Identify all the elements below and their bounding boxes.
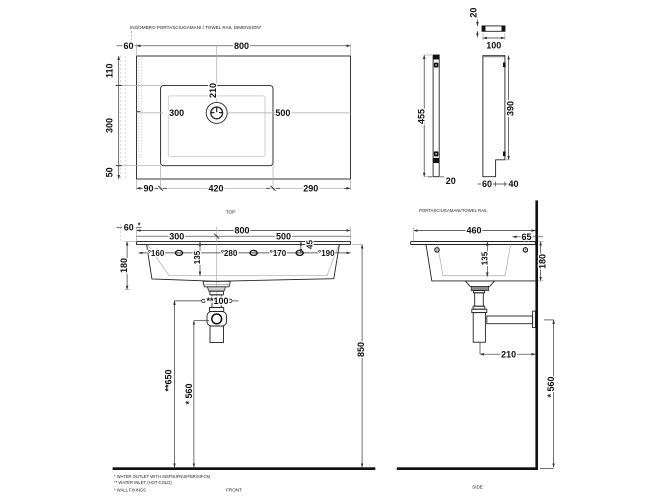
svg-text:°170: °170	[270, 249, 287, 258]
svg-text:°190: °190	[318, 249, 335, 258]
svg-text:135: 135	[480, 251, 489, 265]
svg-text:290: 290	[303, 183, 318, 193]
svg-text:90: 90	[143, 183, 153, 193]
svg-text:*: *	[138, 222, 141, 229]
svg-text:* WATER OUTLET WITH SISP\SIFN: * WATER OUTLET WITH SISP\SIFN\SIFBR\SIFC…	[114, 474, 211, 479]
svg-text:50: 50	[105, 167, 115, 177]
svg-text:500: 500	[276, 231, 291, 241]
svg-text:°160: °160	[148, 249, 165, 258]
svg-text:°280: °280	[221, 249, 238, 258]
svg-text:210: 210	[208, 83, 218, 98]
svg-text:FRONT: FRONT	[226, 488, 242, 493]
svg-text:455: 455	[416, 109, 426, 124]
svg-text:300: 300	[169, 231, 184, 241]
svg-text:20: 20	[468, 8, 478, 18]
svg-text:40: 40	[508, 179, 518, 189]
svg-text:500: 500	[275, 108, 290, 118]
svg-text:PORTASCIUGAMANI/TOWEL RAIL: PORTASCIUGAMANI/TOWEL RAIL	[419, 208, 488, 213]
svg-text:300: 300	[169, 108, 184, 118]
svg-text:SIDE: SIDE	[472, 485, 483, 490]
svg-text:100: 100	[486, 40, 501, 50]
svg-text:* 560: * 560	[184, 383, 194, 404]
svg-text:210: 210	[501, 349, 516, 359]
svg-text:INGOMBRO PORTASCIUGAMANI / TOW: INGOMBRO PORTASCIUGAMANI / TOWEL RAIL DI…	[130, 25, 262, 30]
svg-text:**100: **100	[206, 296, 228, 306]
svg-text:60: 60	[124, 222, 134, 232]
svg-text:420: 420	[208, 183, 223, 193]
svg-text:* 560: * 560	[546, 376, 556, 397]
svg-text:60: 60	[482, 179, 492, 189]
svg-text:180: 180	[537, 254, 547, 269]
svg-text:110: 110	[105, 63, 115, 78]
svg-text:65: 65	[521, 232, 531, 242]
svg-text:60: 60	[123, 41, 133, 51]
svg-text:460: 460	[466, 226, 481, 236]
svg-text:20: 20	[446, 176, 456, 186]
svg-text:850: 850	[356, 342, 366, 357]
svg-text:TOP: TOP	[226, 210, 235, 215]
svg-text:* WALL FIXINGS: * WALL FIXINGS	[114, 488, 146, 493]
svg-text:180: 180	[119, 258, 129, 273]
svg-text:**650: **650	[164, 369, 174, 391]
svg-text:** WATER INLET (HOT-COLD): ** WATER INLET (HOT-COLD)	[114, 480, 172, 485]
svg-text:135: 135	[193, 250, 202, 264]
svg-text:800: 800	[234, 226, 249, 236]
svg-text:800: 800	[234, 41, 249, 51]
svg-text:45: 45	[305, 240, 314, 249]
svg-text:390: 390	[505, 101, 515, 116]
svg-text:300: 300	[105, 118, 115, 133]
